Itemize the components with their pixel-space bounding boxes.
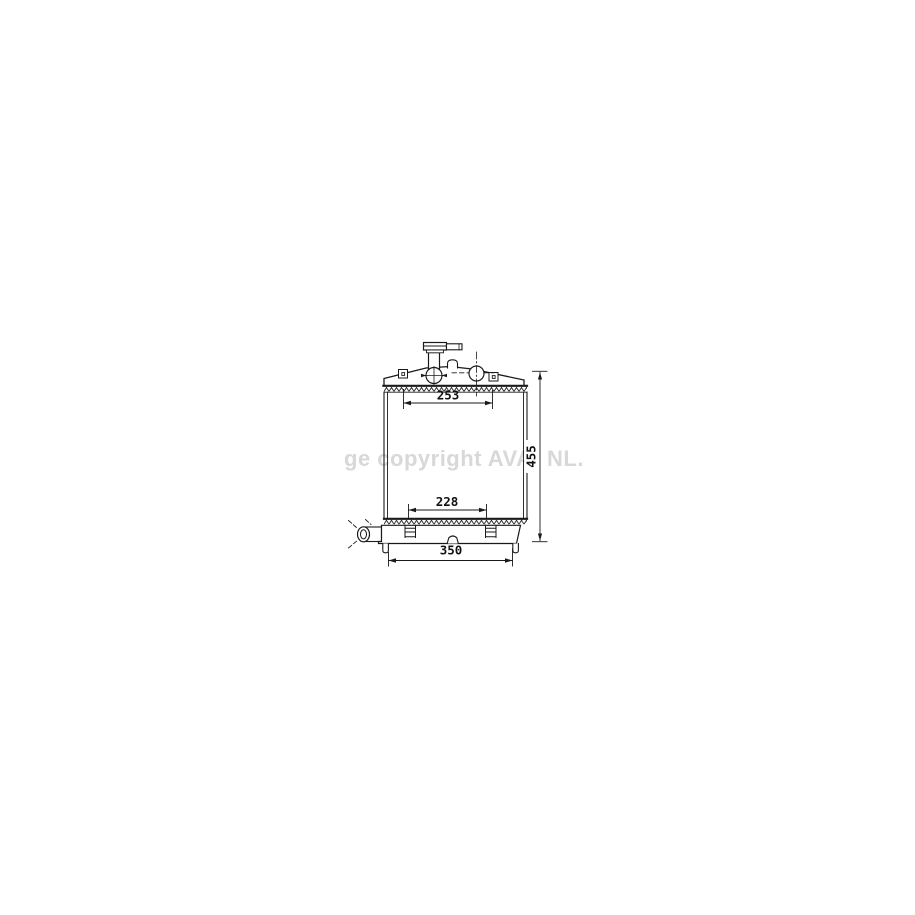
dim-253-arrow-left: [404, 401, 412, 405]
top-tab: [448, 360, 458, 368]
dim-455-label: 455: [524, 445, 539, 468]
dim-350-label: 350: [440, 543, 463, 558]
bottom-leg-left: [383, 544, 389, 553]
dim-350-arrow-left: [389, 558, 397, 562]
bottom-leg-right: [513, 544, 519, 553]
bottom-tank: [349, 520, 521, 553]
dim-350-arrow-right: [505, 558, 513, 562]
top-mount-square-left: [399, 370, 408, 379]
dim-228-label: 228: [436, 494, 459, 509]
drawing-canvas: ge copyright AVA. NL.: [0, 0, 915, 915]
dim-253-label: 253: [437, 388, 460, 403]
hose-break-mark-3: [366, 520, 372, 525]
overflow-pipe: [447, 344, 463, 350]
filler-cap-collar: [427, 350, 444, 353]
core-bottom-fin-strip: [384, 520, 527, 525]
dim-455-arrow-bottom: [538, 534, 542, 541]
dim-228-arrow-right: [479, 508, 487, 512]
dim-253-arrow-right: [485, 401, 493, 405]
dim-455-arrow-top: [538, 372, 542, 379]
hose-break-mark-1: [349, 521, 358, 529]
top-mount-square-right: [489, 373, 498, 382]
radiator-technical-drawing: 253 228 350 455: [0, 0, 915, 915]
outlet-hose-end-outer: [358, 527, 370, 542]
dim-228-arrow-left: [409, 508, 417, 512]
hose-break-mark-2: [349, 541, 358, 548]
